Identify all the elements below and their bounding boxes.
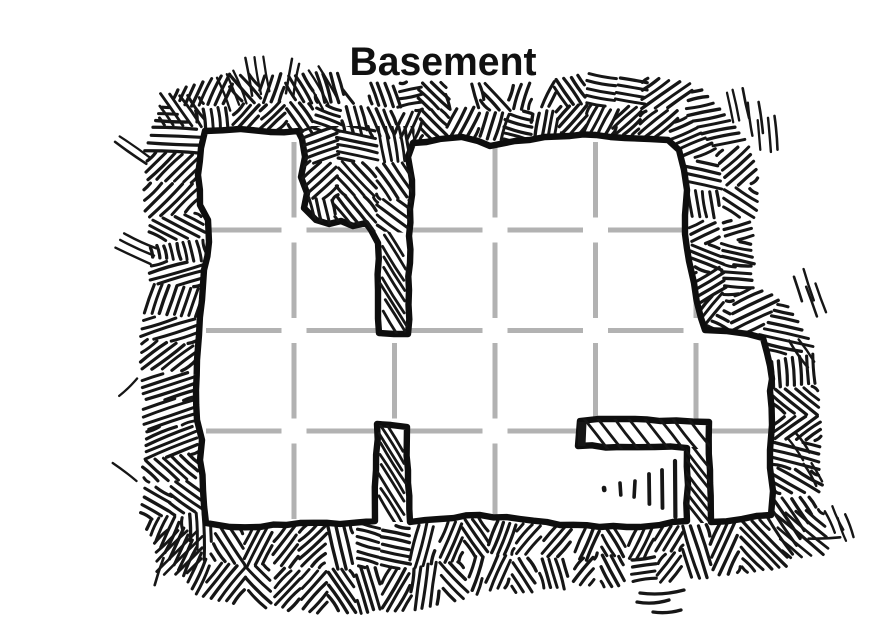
svg-text:Basement: Basement [350, 40, 537, 84]
